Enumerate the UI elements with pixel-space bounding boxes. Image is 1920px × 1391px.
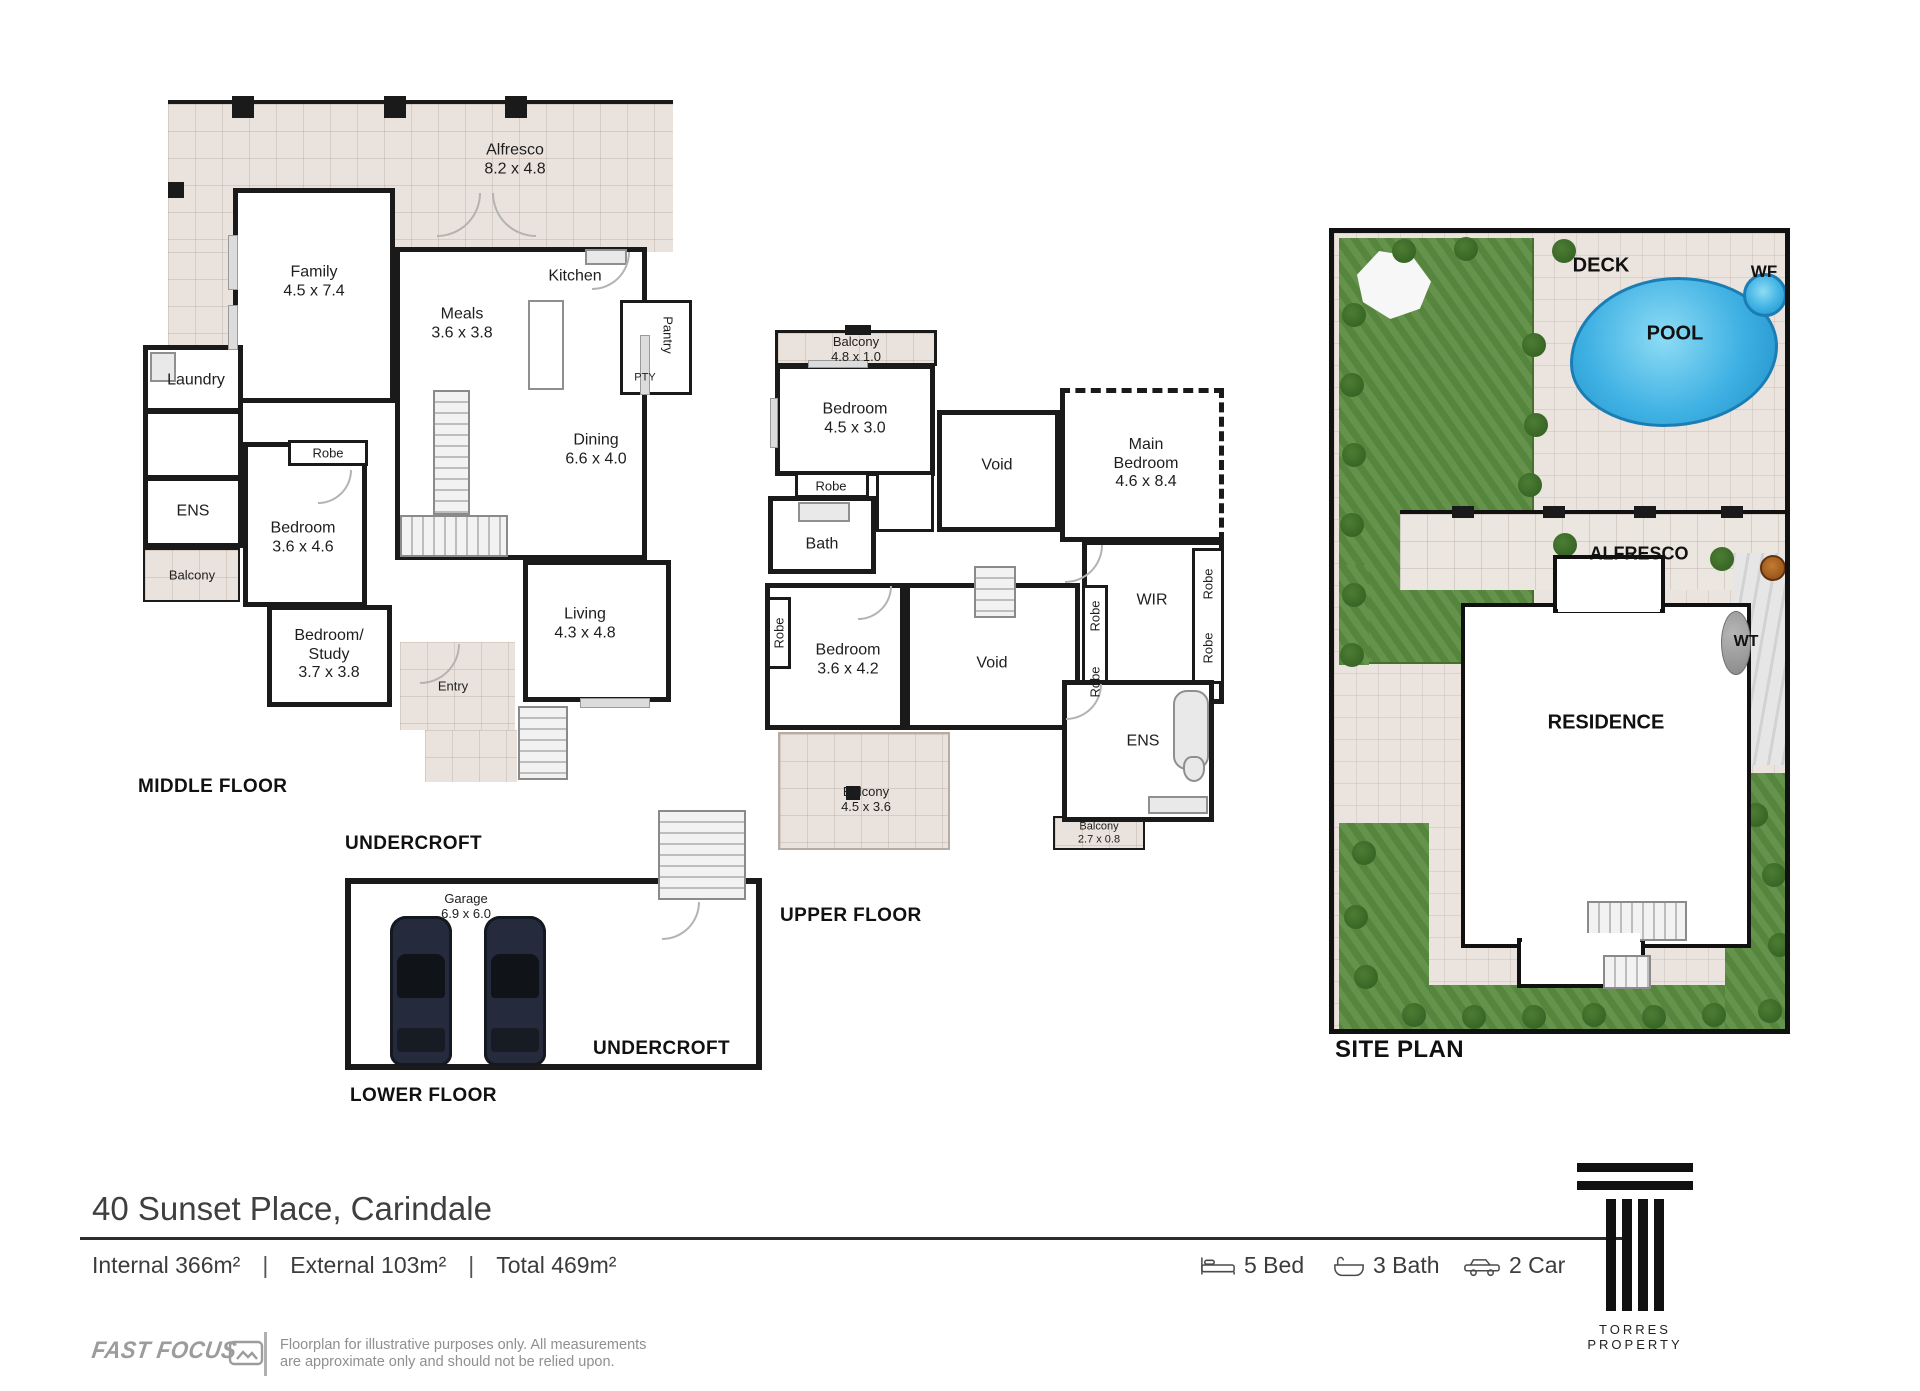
room-label-balcony: Balcony bbox=[169, 567, 215, 582]
window bbox=[580, 698, 650, 708]
bath-icon bbox=[1333, 1254, 1365, 1278]
shrub bbox=[1582, 1003, 1606, 1027]
room-label-garage: Garage 6.9 x 6.0 bbox=[441, 891, 491, 921]
provider-name: FAST FOCUS bbox=[90, 1337, 238, 1365]
entry-steps bbox=[518, 706, 568, 780]
area-summary: Internal 366m² | External 103m² | Total … bbox=[92, 1252, 616, 1279]
divider-line bbox=[80, 1237, 1632, 1240]
room-label-bedroom-study: Bedroom/ Study 3.7 x 3.8 bbox=[294, 627, 363, 683]
shrub bbox=[1402, 1003, 1426, 1027]
room-label-wir: WIR bbox=[1136, 592, 1167, 611]
wall-column bbox=[232, 96, 254, 118]
residence-join bbox=[1558, 598, 1660, 612]
shrub bbox=[1768, 933, 1790, 957]
bbq bbox=[1760, 555, 1786, 581]
room-label-upper-bedroom2: Bedroom 3.6 x 4.2 bbox=[816, 641, 881, 678]
shrub bbox=[1342, 583, 1366, 607]
robe-label-vertical: Robe bbox=[772, 617, 787, 648]
shrub bbox=[1342, 303, 1366, 327]
wall-column bbox=[168, 182, 184, 198]
shrub bbox=[1758, 999, 1782, 1023]
room-label-kitchen: Kitchen bbox=[548, 268, 601, 287]
site-label-deck: DECK bbox=[1573, 255, 1630, 278]
shrub bbox=[1340, 643, 1364, 667]
area-internal: Internal 366m² bbox=[92, 1252, 240, 1279]
shrub bbox=[1642, 1005, 1666, 1029]
shrub bbox=[1553, 533, 1577, 557]
property-address: 40 Sunset Place, Carindale bbox=[92, 1190, 492, 1228]
upper-stairs bbox=[974, 566, 1016, 618]
robe-label-vertical: Robe bbox=[1088, 666, 1103, 697]
site-label-pool: POOL bbox=[1647, 323, 1704, 346]
room-label-void-bottom: Void bbox=[976, 655, 1007, 674]
room-label-family: Family 4.5 x 7.4 bbox=[283, 263, 344, 300]
alfresco-side-tiles bbox=[168, 252, 235, 352]
room-label-upper-balcony-small: Balcony 2.7 x 0.8 bbox=[1078, 820, 1120, 846]
shrub bbox=[1352, 841, 1376, 865]
shrub bbox=[1462, 1005, 1486, 1029]
room-label-bath: Bath bbox=[806, 536, 839, 555]
room-label-alfresco: Alfresco 8.2 x 4.8 bbox=[484, 141, 545, 178]
bed-icon bbox=[1200, 1254, 1236, 1278]
shrub bbox=[1454, 237, 1478, 261]
stat-bath: 3 Bath bbox=[1333, 1252, 1440, 1279]
brand-name: TORRES PROPERTY bbox=[1560, 1322, 1710, 1352]
site-label-wt: WT bbox=[1734, 633, 1759, 651]
stat-car: 2 Car bbox=[1463, 1252, 1565, 1279]
room-label-laundry: Laundry bbox=[167, 372, 225, 391]
logo-bar bbox=[1577, 1181, 1693, 1190]
residence-join bbox=[1522, 933, 1640, 947]
room-label-upper-bedroom1: Bedroom 4.5 x 3.0 bbox=[823, 400, 888, 437]
disclaimer: Floorplan for illustrative purposes only… bbox=[280, 1337, 646, 1371]
room-label-void-top: Void bbox=[981, 457, 1012, 476]
room-label-upper-ens: ENS bbox=[1127, 733, 1160, 752]
shrub bbox=[1522, 1005, 1546, 1029]
car-left bbox=[390, 916, 452, 1066]
site-label-alfresco: ALFRESCO bbox=[1590, 544, 1689, 565]
photo-icon bbox=[228, 1338, 264, 1368]
room-label-bedroom: Bedroom 3.6 x 4.6 bbox=[271, 519, 336, 556]
site-label-wf: WF bbox=[1751, 262, 1777, 282]
window bbox=[228, 235, 238, 290]
kitchen-island bbox=[528, 300, 564, 390]
room-label-main-bedroom: Main Bedroom 4.6 x 8.4 bbox=[1098, 436, 1194, 492]
window bbox=[770, 398, 778, 448]
shrub bbox=[1518, 473, 1542, 497]
shrub bbox=[1342, 443, 1366, 467]
area-pipe: | bbox=[262, 1252, 268, 1279]
shrub bbox=[1354, 965, 1378, 989]
shrub bbox=[1522, 333, 1546, 357]
disclaimer-line1: Floorplan for illustrative purposes only… bbox=[280, 1337, 646, 1354]
shrub bbox=[1524, 413, 1548, 437]
wall-column bbox=[1634, 506, 1656, 518]
area-external: External 103m² bbox=[290, 1252, 446, 1279]
logo-bar bbox=[1622, 1199, 1632, 1311]
room-label-upper-balcony-top: Balcony 4.8 x 1.0 bbox=[831, 334, 881, 364]
robe-label-vertical: Robe bbox=[1088, 600, 1103, 631]
shrub bbox=[1340, 373, 1364, 397]
wall-column bbox=[1721, 506, 1743, 518]
wall-column bbox=[1452, 506, 1474, 518]
site-plan-box: DECK WF POOL ALFRESCO WT RESIDENCE bbox=[1329, 228, 1790, 1034]
room-label-upper-robe-top: Robe bbox=[815, 478, 846, 493]
residence-footprint bbox=[1461, 603, 1751, 948]
bath-vanity bbox=[798, 502, 850, 522]
credit-divider bbox=[264, 1332, 267, 1376]
site-plan-title: SITE PLAN bbox=[1335, 1036, 1464, 1064]
undercroft-bottom-label: UNDERCROFT bbox=[593, 1038, 730, 1060]
logo-bar bbox=[1654, 1199, 1664, 1311]
window bbox=[228, 305, 238, 350]
shrub bbox=[1702, 1003, 1726, 1027]
upper-wc bbox=[876, 472, 934, 532]
area-total: Total 469m² bbox=[496, 1252, 616, 1279]
car-right bbox=[484, 916, 546, 1066]
room-label-pty: PTY bbox=[634, 372, 655, 385]
shrub bbox=[1344, 905, 1368, 929]
stat-bed: 5 Bed bbox=[1200, 1252, 1304, 1279]
undercroft-top-label: UNDERCROFT bbox=[345, 833, 482, 855]
internal-wall bbox=[143, 475, 243, 481]
porch-step-tiles bbox=[425, 730, 517, 782]
shrub bbox=[1710, 547, 1734, 571]
lower-floor-title: LOWER FLOOR bbox=[350, 1085, 497, 1107]
shrub bbox=[1392, 239, 1416, 263]
area-pipe: | bbox=[468, 1252, 474, 1279]
upper-floor-title: UPPER FLOOR bbox=[780, 905, 922, 927]
logo-bar bbox=[1606, 1199, 1616, 1311]
robe-label-vertical: Robe bbox=[1201, 568, 1216, 599]
middle-stairs-flight bbox=[433, 390, 470, 515]
logo-bar bbox=[1577, 1163, 1693, 1172]
wall-column bbox=[1543, 506, 1565, 518]
window bbox=[640, 335, 650, 395]
floorplan-canvas: Alfresco 8.2 x 4.8 Family 4.5 x 7.4 Kitc… bbox=[0, 0, 1920, 1391]
middle-floor-title: MIDDLE FLOOR bbox=[138, 776, 287, 798]
shrub bbox=[1762, 863, 1786, 887]
room-label-dining: Dining 6.6 x 4.0 bbox=[565, 431, 626, 468]
room-label-robe: Robe bbox=[312, 445, 343, 460]
shrub bbox=[1340, 513, 1364, 537]
site-steps-small bbox=[1603, 955, 1651, 989]
disclaimer-line2: are approximate only and should not be r… bbox=[280, 1354, 646, 1371]
wall-column bbox=[384, 96, 406, 118]
toilet bbox=[1183, 756, 1205, 782]
site-label-residence: RESIDENCE bbox=[1548, 712, 1665, 735]
room-label-meals: Meals 3.6 x 3.8 bbox=[431, 305, 492, 342]
room-label-upper-balcony-big: Balcony 4.5 x 3.6 bbox=[841, 784, 891, 814]
pantry-room bbox=[620, 300, 692, 395]
car-icon bbox=[1463, 1255, 1501, 1277]
room-label-ens: ENS bbox=[177, 503, 210, 522]
vanity bbox=[1148, 796, 1208, 814]
internal-wall bbox=[143, 408, 243, 414]
lower-stairwell bbox=[658, 810, 746, 900]
room-label-living: Living 4.3 x 4.8 bbox=[554, 605, 615, 642]
robe-label-vertical: Robe bbox=[1201, 632, 1216, 663]
logo-bar bbox=[1638, 1199, 1648, 1311]
room-label-pantry: Pantry bbox=[661, 316, 676, 354]
wall-column bbox=[505, 96, 527, 118]
middle-stairs-landing bbox=[400, 515, 508, 557]
room-label-entry: Entry bbox=[438, 678, 468, 693]
